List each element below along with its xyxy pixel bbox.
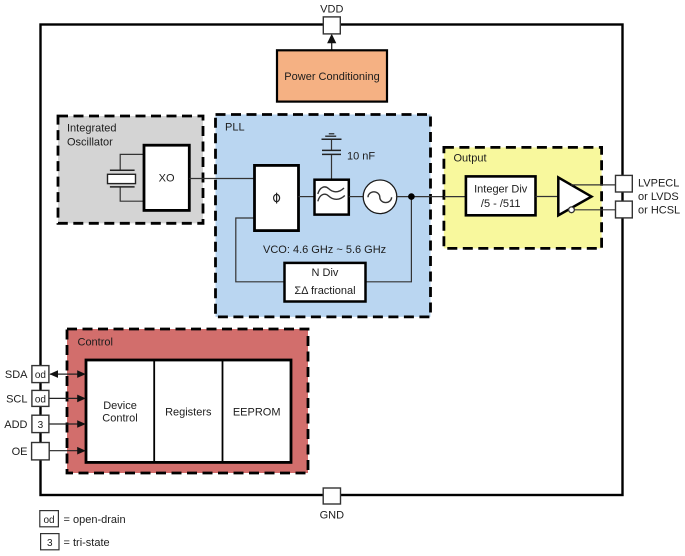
svg-text:VCO: 4.6 GHz ~ 5.6 GHz: VCO: 4.6 GHz ~ 5.6 GHz bbox=[263, 244, 386, 256]
svg-text:or HCSL: or HCSL bbox=[638, 204, 680, 216]
svg-text:Oscillator: Oscillator bbox=[67, 137, 113, 149]
svg-text:N Div: N Div bbox=[312, 267, 339, 279]
svg-text:XO: XO bbox=[159, 173, 175, 185]
svg-text:or LVDS: or LVDS bbox=[638, 191, 679, 203]
svg-text:= open-drain: = open-drain bbox=[64, 514, 126, 526]
svg-text:SCL: SCL bbox=[6, 394, 27, 406]
svg-text:EEPROM: EEPROM bbox=[233, 407, 281, 419]
svg-text:Output: Output bbox=[454, 153, 487, 165]
svg-text:OE: OE bbox=[12, 446, 28, 458]
svg-text:GND: GND bbox=[320, 510, 345, 522]
svg-text:LVPECL: LVPECL bbox=[638, 177, 679, 189]
svg-text:SDA: SDA bbox=[5, 369, 28, 381]
svg-text:10 nF: 10 nF bbox=[347, 151, 375, 163]
svg-text:Integrated: Integrated bbox=[67, 123, 117, 135]
svg-text:/5 - /511: /5 - /511 bbox=[481, 198, 521, 210]
svg-text:VDD: VDD bbox=[320, 4, 343, 16]
svg-text:PLL: PLL bbox=[225, 122, 245, 134]
svg-text:Integer Div: Integer Div bbox=[474, 183, 528, 195]
svg-text:ADD: ADD bbox=[4, 419, 27, 431]
svg-text:od: od bbox=[43, 515, 54, 526]
svg-text:od: od bbox=[35, 370, 46, 381]
svg-text:Registers: Registers bbox=[165, 407, 212, 419]
svg-text:Device: Device bbox=[103, 400, 137, 412]
svg-text:= tri-state: = tri-state bbox=[64, 537, 110, 549]
svg-text:Control: Control bbox=[78, 337, 113, 349]
svg-text:Power Conditioning: Power Conditioning bbox=[284, 71, 379, 83]
svg-text:Control: Control bbox=[102, 413, 137, 425]
svg-text:od: od bbox=[35, 394, 46, 405]
svg-text:3: 3 bbox=[38, 420, 44, 431]
svg-text:3: 3 bbox=[47, 538, 53, 549]
svg-text:ΣΔ fractional: ΣΔ fractional bbox=[294, 285, 355, 297]
